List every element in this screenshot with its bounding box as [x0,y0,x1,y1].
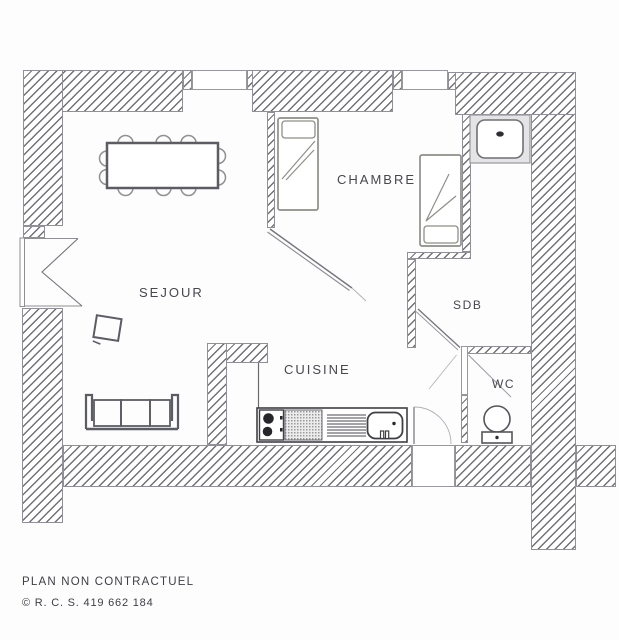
door-sdb [416,309,460,389]
footer-disclaimer: PLAN NON CONTRACTUEL [22,576,194,588]
appliance-textured [285,410,322,440]
furniture-layer [0,0,619,640]
toilet [482,406,512,443]
sink [368,413,403,439]
label-sejour: SEJOUR [139,285,204,300]
flush-button [495,436,498,439]
label-chambre: CHAMBRE [337,172,416,187]
side-chair [92,315,121,347]
door-entry [414,407,451,444]
label-cuisine: CUISINE [284,362,351,377]
bed-left [278,118,318,210]
label-sdb: SDB [453,298,482,312]
floor-plan: SEJOUR CHAMBRE CUISINE SDB WC PLAN NON C… [0,0,619,640]
shower-tray [470,115,530,163]
dining-table [100,136,226,196]
drain [496,131,504,136]
sofa [86,395,178,429]
stove [260,410,284,440]
window-left-casement [20,238,82,307]
faucet-dot [392,422,395,425]
label-wc: WC [492,377,515,391]
table-top [107,143,218,188]
door-chambre [268,229,367,301]
footer-rcs: © R. C. S. 419 662 184 [22,597,154,609]
bed-right [420,155,461,246]
